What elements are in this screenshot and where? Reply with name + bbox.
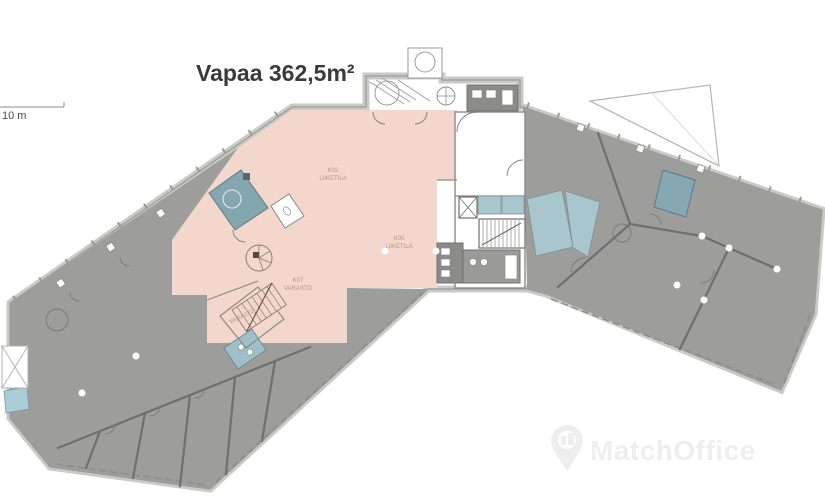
room-label-k02-type: LIIKETILA [319, 176, 346, 182]
available-area-highlight [172, 110, 457, 343]
matchoffice-watermark: MatchOffice [551, 425, 756, 471]
room-label-k07-type: VARASTO [284, 286, 312, 292]
scale-bar: 10 m [0, 102, 64, 122]
map-pin-building-icon [551, 425, 583, 471]
core-teal-room-2 [502, 196, 524, 214]
room-label-k05-type: LIIKETILA [385, 244, 412, 250]
floor-plan-page: K02 LIIKETILA K05 LIIKETILA K07 VARASTO … [0, 0, 825, 500]
room-label-k05-id: K05 [394, 236, 405, 242]
elevator [459, 197, 477, 218]
scale-bar-label: 10 m [2, 110, 26, 122]
stairwell [479, 219, 525, 248]
room-label-k07-id: K07 [293, 278, 304, 284]
room-label-k02-id: K02 [328, 168, 339, 174]
left-edge-teal-room [4, 387, 29, 413]
watermark-text: MatchOffice [590, 435, 756, 466]
spiral-stair [246, 245, 272, 271]
floor-plan: K02 LIIKETILA K05 LIIKETILA K07 VARASTO … [0, 0, 825, 500]
core-teal-room-1 [478, 196, 501, 214]
building: K02 LIIKETILA K05 LIIKETILA K07 VARASTO … [2, 48, 822, 489]
exterior-stair [2, 346, 28, 388]
page-title: Vapaa 362,5m² [196, 60, 355, 86]
